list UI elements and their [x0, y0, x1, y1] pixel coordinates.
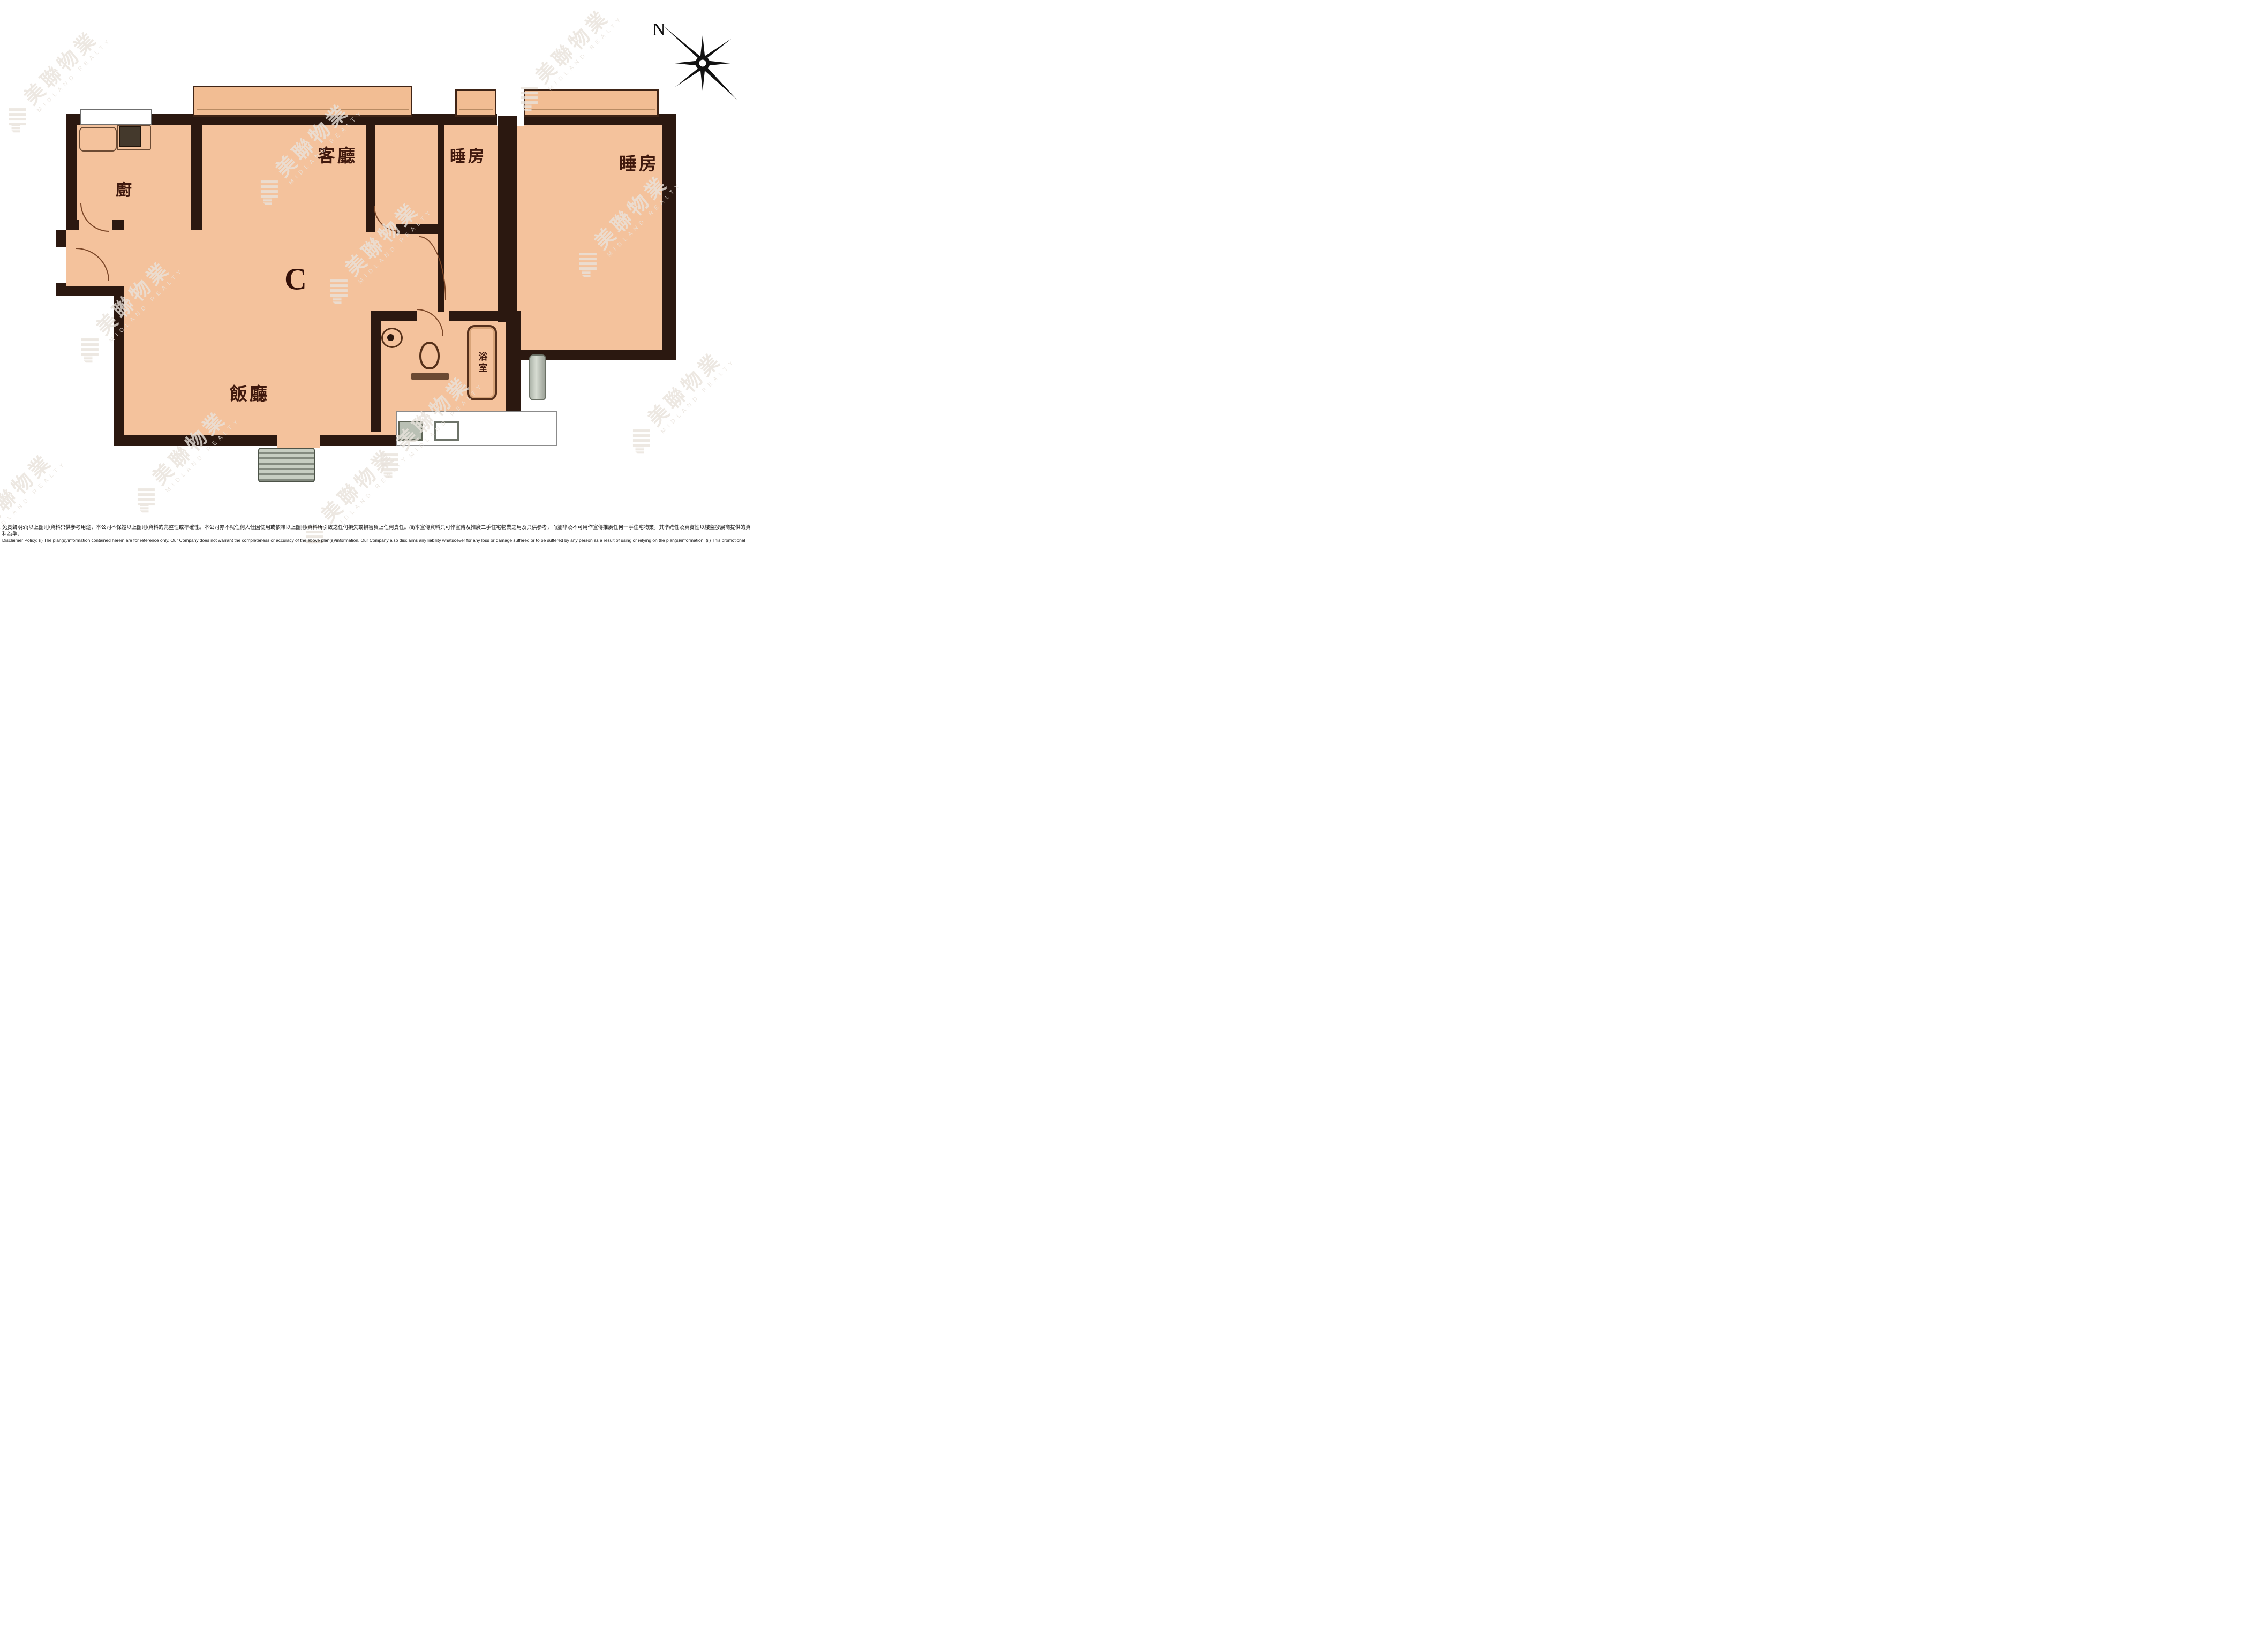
living-room-bay-window	[193, 86, 412, 117]
kitchen-label: 廚	[116, 177, 134, 200]
water-heater-bar	[529, 354, 546, 400]
wall-vestibule-bottom	[56, 286, 114, 296]
window-sill	[197, 109, 409, 110]
bedroom1-label: 睡房	[450, 143, 486, 167]
dining-room-label: 飯廳	[230, 380, 269, 405]
wall-living-right	[366, 125, 375, 232]
compass: N	[632, 10, 750, 127]
bathroom-label: 浴室	[476, 352, 489, 374]
midland-logo-icon	[370, 442, 410, 482]
bedroom1-window	[455, 89, 496, 117]
kitchen-counter	[79, 127, 117, 152]
wall-dining-bottom-left	[114, 435, 277, 446]
floor-main-lower	[114, 230, 517, 435]
bedroom2-label: 睡房	[619, 149, 659, 175]
wall-right	[662, 114, 676, 360]
wall-kitchen-bottom-left	[66, 220, 79, 230]
compass-north-letter: N	[652, 20, 666, 40]
disclaimer-en-line1: Disclaimer Policy: (i) The plan(s)/infor…	[2, 538, 754, 545]
window-sill	[459, 109, 493, 110]
wall-bathroom-left	[371, 311, 381, 432]
utility-box-filled	[398, 421, 423, 441]
ac-platform	[258, 448, 315, 482]
toilet-bowl	[419, 342, 440, 369]
floor-balcony-passage	[277, 435, 320, 448]
wall-kitchen-left	[66, 114, 77, 220]
unit-label: C	[284, 261, 307, 297]
midland-logo-icon	[126, 477, 166, 517]
floor-plan-page: 客廳 睡房 睡房 廚 飯廳 浴室 C N 美聯物業MIDLAND REALTY …	[0, 0, 756, 545]
disclaimer-zh: 免責聲明:(i)以上圖則/資料只供參考用途，本公司不保證以上圖則/資料的完整性或…	[2, 525, 754, 538]
wall-dining-left	[114, 286, 124, 446]
wall-vestibule-left-upper	[56, 230, 66, 247]
midland-logo-icon	[622, 418, 661, 458]
living-room-label: 客廳	[318, 141, 357, 167]
midland-logo-icon	[70, 327, 110, 367]
disclaimer: 免責聲明:(i)以上圖則/資料只供參考用途，本公司不保證以上圖則/資料的完整性或…	[2, 525, 754, 545]
toilet-tank	[411, 373, 449, 380]
utility-box-outline	[434, 421, 459, 441]
wall-bedroom-divider	[498, 116, 517, 322]
wall-kitchen-bottom-right	[112, 220, 124, 230]
wall-kitchen-right	[191, 125, 202, 230]
kitchen-stove	[119, 126, 141, 147]
bathroom-sink-drain	[387, 334, 394, 341]
kitchen-window	[80, 109, 152, 125]
wall-hall-pocket	[396, 224, 438, 234]
midland-logo-icon	[0, 97, 37, 137]
